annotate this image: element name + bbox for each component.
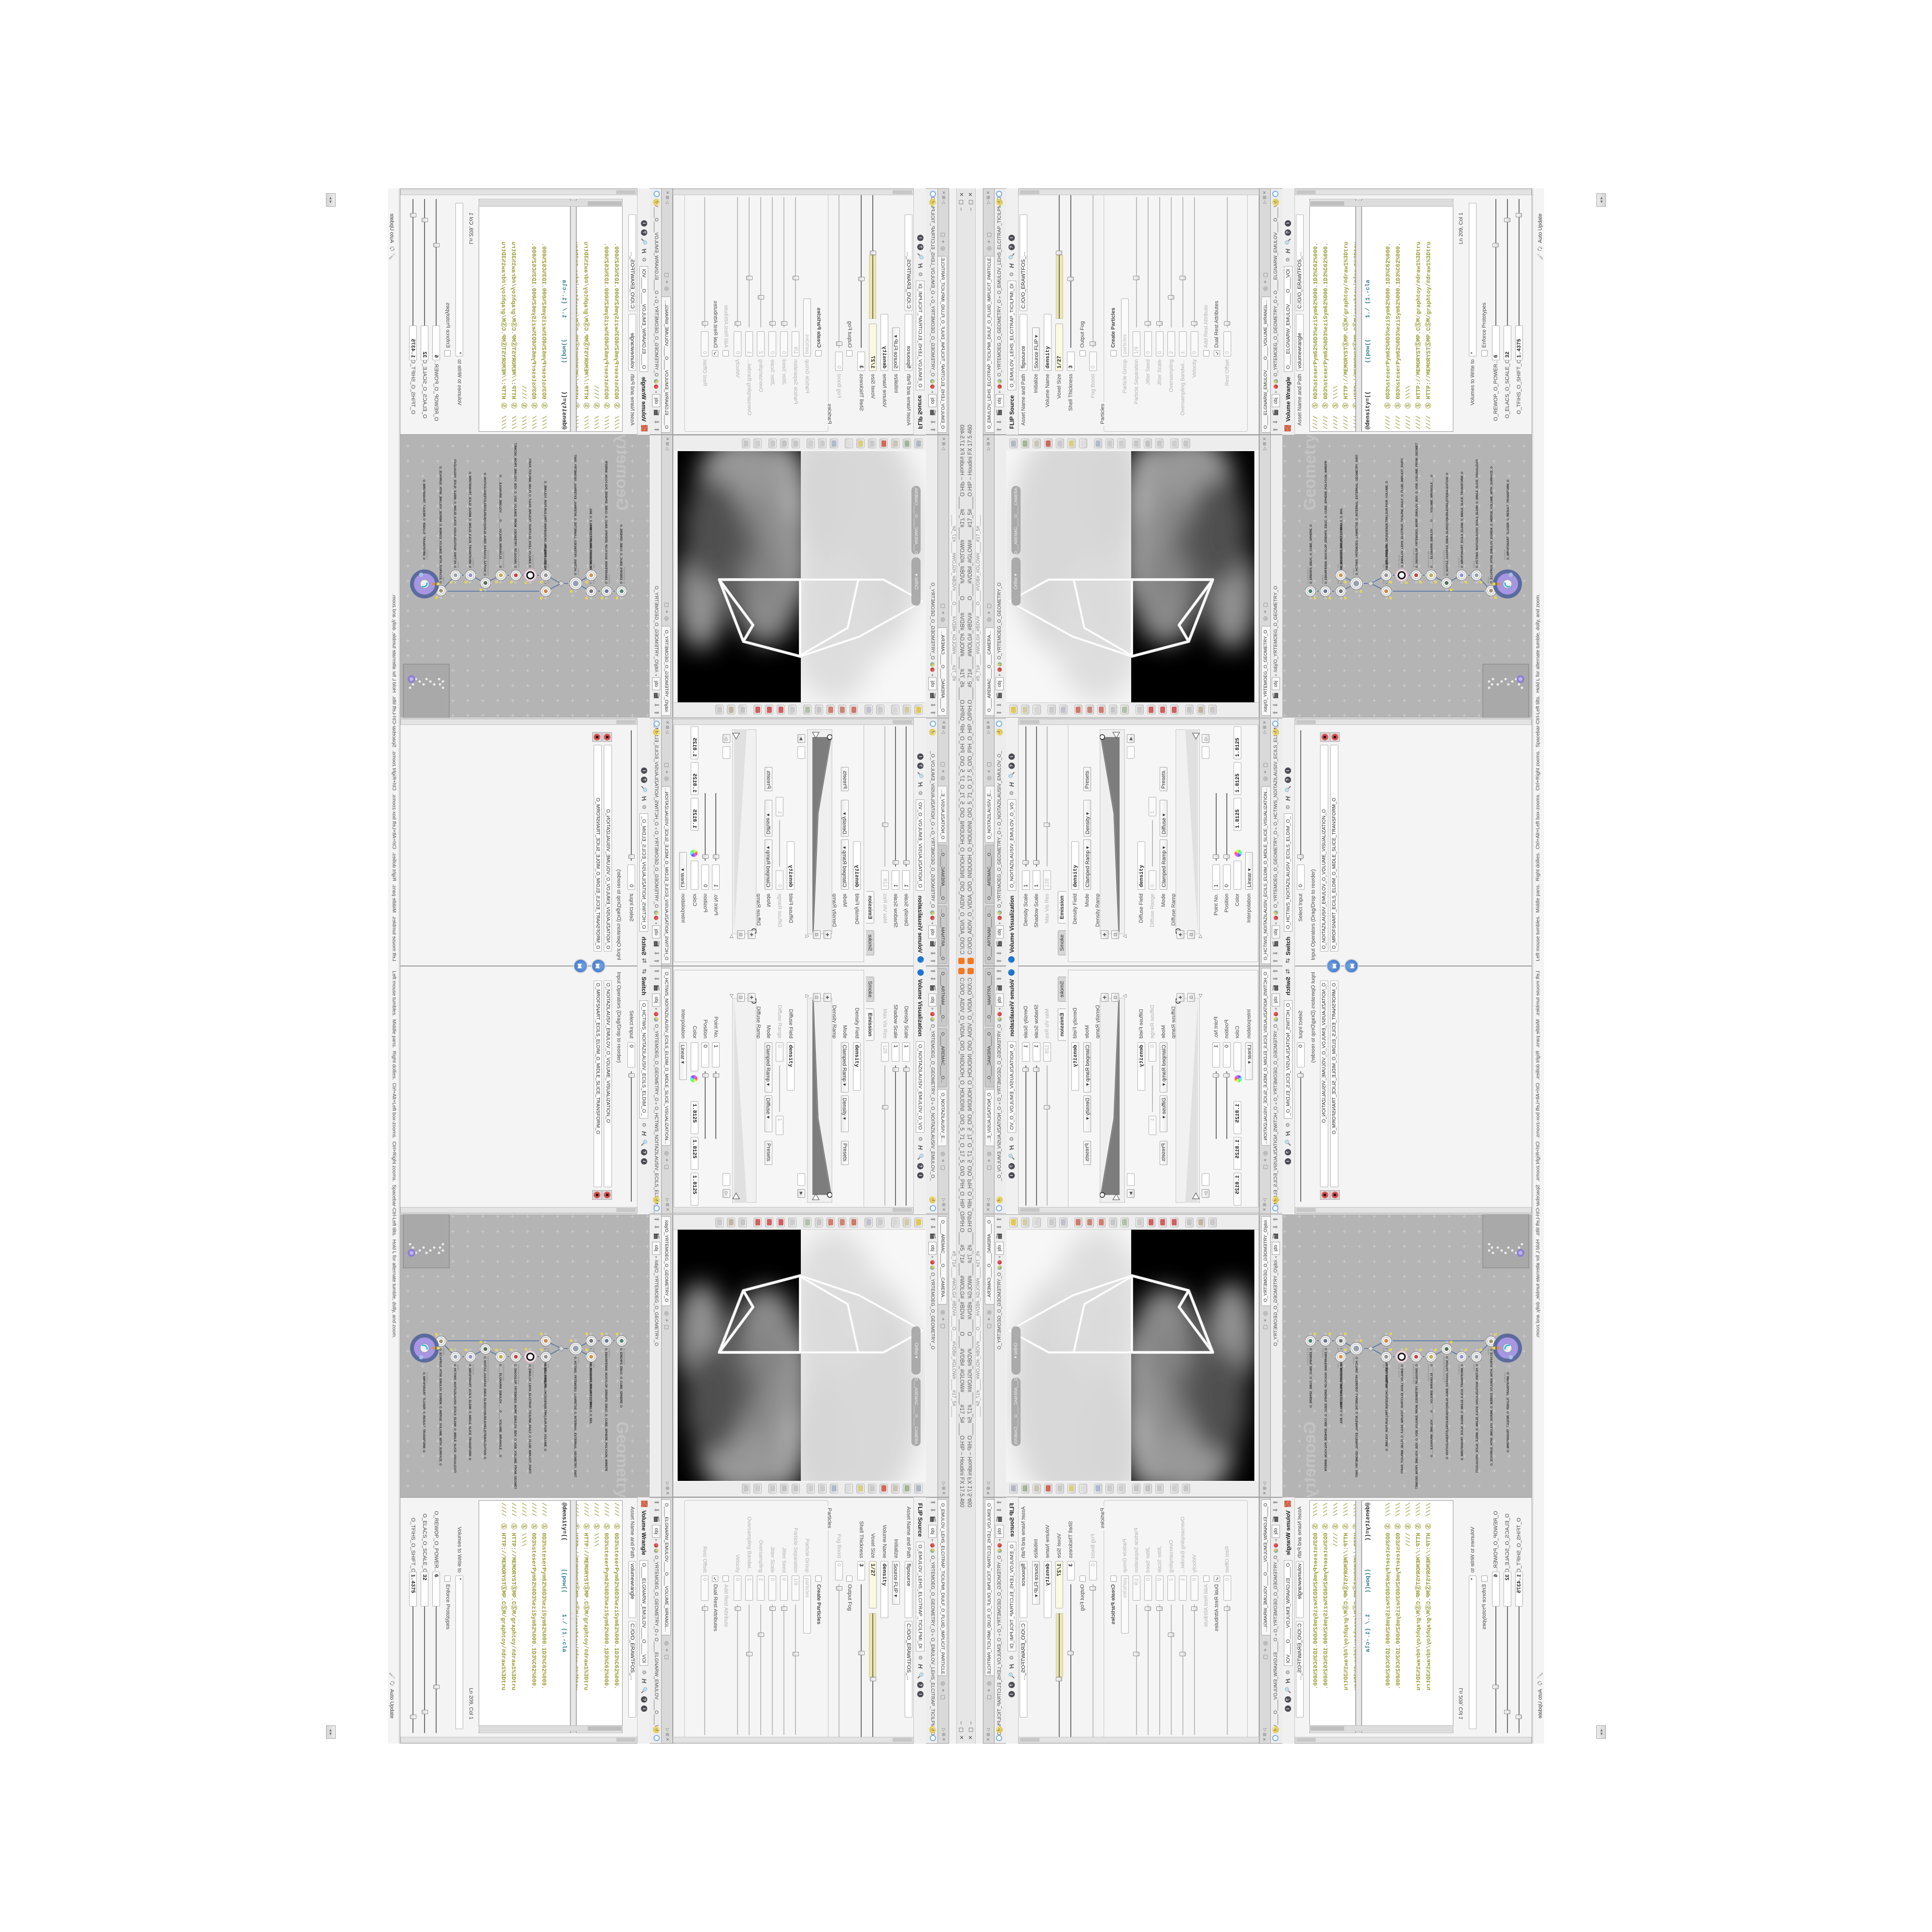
svg-text:O_EREHPS_EBUC_O_CUBE_SPHERE_O: O_EREHPS_EBUC_O_CUBE_SPHERE_O — [1309, 525, 1313, 584]
svg-text:O_ECAFRUS_HTIW_EMULOV_EGREM_O_: O_ECAFRUS_HTIW_EMULOV_EGREM_O_MERGE_VOLU… — [439, 1349, 442, 1466]
svg-text:O_NOITAZ..O/AGFAS_EMUL.SLI/D/(: O_NOITAZ..O/AGFAS_EMUL.SLI/D/(CO)NJDLE/S… — [483, 473, 486, 576]
svg-text:O_EMARFENIW_NOGYLOP_EREHPS_EBU: O_EMARFENIW_NOGYLOP_EREHPS_EBUC_O_CUBE_S… — [604, 461, 608, 584]
svg-text:O_ECA/RUB|JR..: O_ECA/RUB|JR.. — [1385, 1364, 1389, 1389]
svg-text:O_MROFSNART_TLUSER_O_RESULT_TR: O_MROFSNART_TLUSER_O_RESULT_TRANSFORM_O — [1506, 480, 1510, 560]
svg-text:O_NOITAZ..O/AGFAS_EMUL.SLI/D/(: O_NOITAZ..O/AGFAS_EMUL.SLI/D/(CO)NJDLE/S… — [1446, 473, 1449, 576]
svg-text:O_ECA.FRU.S|DL_RIM|LPIN..OK(S|: O_ECA.FRU.S|DL_RIM|LPIN..OK(S|GEN|W.TRK(… — [543, 1348, 547, 1451]
svg-text:O_NO.EL/BD,NO3,PETS,TRP.OLS_O_: O_NO.EL/BD,NO3,PETS,TRP.OLS_O_BDL — [1340, 508, 1343, 568]
svg-text:O_SNOGILOP_YRTEMOEG_MORF_EMULO: O_SNOGILOP_YRTEMOEG_MORF_EMULOV_BDV_O_VD… — [1415, 443, 1419, 568]
svg-text:O_SNOGILOP_YRTEMOEG_MORF_EMULO: O_SNOGILOP_YRTEMOEG_MORF_EMULOV_BDV_O_VD… — [1415, 1364, 1419, 1489]
svg-text:O_ECAFRUS_HTIW_EMULOV_EGREM_O_: O_ECAFRUS_HTIW_EMULOV_EGREM_O_MERGE_VOLU… — [439, 466, 442, 583]
svg-text:O_NO.EL/BD,NO3,PETS,TRP.OLS_O_: O_NO.EL/BD,NO3,PETS,TRP.OLS_O_BDL — [589, 508, 592, 568]
svg-text:O_NO.EL/BD,NO3,PETS,TRP.OLS_O_: O_NO.EL/BD,NO3,PETS,TRP.OLS_O_BDL — [1340, 1364, 1343, 1424]
svg-text:O_MROFSNART_TLUSER_O_RESULT_TR: O_MROFSNART_TLUSER_O_RESULT_TRANSFORM_O — [1506, 1372, 1510, 1452]
svg-text:O_HCTIWS_NOITAZILAUSIV_ECILS_E: O_HCTIWS_NOITAZILAUSIV_ECILS_ELDIM_O_MID… — [1476, 1364, 1479, 1473]
svg-text:O_EMULOV_LEHS_ELCITRAP_TICILPM: O_EMULOV_LEHS_ELCITRAP_TICILPMI_DIULF_O_… — [1401, 458, 1404, 568]
svg-text:O_ECAFRUS_HTIW_EMULOV_EGREM_O_: O_ECAFRUS_HTIW_EMULOV_EGREM_O_MERGE_VOLU… — [1490, 466, 1493, 583]
svg-text:O_ECA/RUB|JR..: O_ECA/RUB|JR.. — [1385, 543, 1389, 568]
svg-text:O____ELGNARW_EMULOV____O____VO: O____ELGNARW_EMULOV____O____VOLUME_WRANG… — [498, 1364, 502, 1457]
svg-text:O_ECA/RUB|JR..: O_ECA/RUB|JR.. — [543, 1364, 547, 1389]
svg-text:O_HCTIWS_NOITAZILAUSIV_ECILS_E: O_HCTIWS_NOITAZILAUSIV_ECILS_ELDIM_O_MID… — [1476, 459, 1479, 568]
svg-text:O_MROFSNART_TLUSER_O_RESULT_TR: O_MROFSNART_TLUSER_O_RESULT_TRANSFORM_O — [422, 480, 426, 560]
svg-text:O_ECA.FRU.S|DL_RIM|LPIN..OK(S|: O_ECA.FRU.S|DL_RIM|LPIN..OK(S|GEN|W.TRK(… — [1385, 1348, 1389, 1451]
svg-text:O_EREHPS_EBUC_O_CUBE_SPHERE_O: O_EREHPS_EBUC_O_CUBE_SPHERE_O — [1309, 1348, 1313, 1407]
svg-text:Geometry: Geometry — [1301, 1421, 1319, 1497]
svg-text:O_MROFSNART_TLUSER_O_RESULT_TR: O_MROFSNART_TLUSER_O_RESULT_TRANSFORM_O — [422, 1372, 426, 1452]
svg-text:O_NOITAZ..O/AGFAS_EMUL.SLI/D/(: O_NOITAZ..O/AGFAS_EMUL.SLI/D/(CO)NJDLE/S… — [483, 1356, 486, 1459]
svg-text:O_NOITAZ..O/AGFAS_EMUL.SLI/D/(: O_NOITAZ..O/AGFAS_EMUL.SLI/D/(CO)NJDLE/S… — [1446, 1356, 1449, 1459]
svg-text:O_HCTIWS_NOITAZILAUSIV_ECILS_E: O_HCTIWS_NOITAZILAUSIV_ECILS_ELDIM_O_MID… — [453, 1364, 456, 1473]
svg-text:O____ELGNARW_EMULOV____O____VO: O____ELGNARW_EMULOV____O____VOLUME_WRANG… — [498, 475, 502, 568]
svg-text:O_ECA.FRU.S|DL_RIM|LPIN..OK(S|: O_ECA.FRU.S|DL_RIM|LPIN..OK(S|GEN|W.TRK(… — [1385, 481, 1389, 584]
svg-text:O_SNOGILOP_YRTEMOEG_MORF_EMULO: O_SNOGILOP_YRTEMOEG_MORF_EMULOV_BDV_O_VD… — [513, 443, 517, 568]
svg-text:O_EMULOV_LEHS_ELCITRAP_TICILPM: O_EMULOV_LEHS_ELCITRAP_TICILPMI_DIULF_O_… — [1401, 1364, 1404, 1474]
svg-text:O_EMULOV_LEHS_ELCITRAP_TICILPM: O_EMULOV_LEHS_ELCITRAP_TICILPMI_DIULF_O_… — [528, 1364, 531, 1474]
svg-text:O_SNOGILOP_YRTEMOEG_MORF_EMULO: O_SNOGILOP_YRTEMOEG_MORF_EMULOV_BDV_O_VD… — [513, 1364, 517, 1489]
svg-text:O_EMULOV_LEHS_ELCITRAP_TICILPM: O_EMULOV_LEHS_ELCITRAP_TICILPMI_DIULF_O_… — [528, 458, 531, 568]
svg-text:Geometry: Geometry — [613, 435, 631, 511]
svg-text:O_MROFSNART_ECILS_ELDIM_O_MIDL: O_MROFSNART_ECILS_ELDIM_O_MIDLE_SLICE_TR… — [468, 471, 471, 568]
svg-text:O_MROFSNART_ECILS_ELDIM_O_MIDL: O_MROFSNART_ECILS_ELDIM_O_MIDLE_SLICE_TR… — [468, 1364, 471, 1461]
svg-text:O_MROFSNART_ECILS_ELDIM_O_MIDL: O_MROFSNART_ECILS_ELDIM_O_MIDLE_SLICE_TR… — [1461, 471, 1464, 568]
svg-text:O_HCTIWS_NOITAZILAUSIV_ECILS_E: O_HCTIWS_NOITAZILAUSIV_ECILS_ELDIM_O_MID… — [453, 459, 456, 568]
svg-text:O_ECAFRUS_HTIW_EMULOV_EGREM_O_: O_ECAFRUS_HTIW_EMULOV_EGREM_O_MERGE_VOLU… — [1490, 1349, 1493, 1466]
svg-text:O_EREHPS_EBUC_O_CUBE_SPHERE_O: O_EREHPS_EBUC_O_CUBE_SPHERE_O — [619, 1348, 623, 1407]
svg-text:O_ECA.FRU.S|DL_RIM|LPIN..OK(S|: O_ECA.FRU.S|DL_RIM|LPIN..OK(S|GEN|W.TRK(… — [543, 481, 547, 584]
svg-text:O_EREHPS_EBUC_O_CUBE_SPHERE_O: O_EREHPS_EBUC_O_CUBE_SPHERE_O — [619, 525, 623, 584]
svg-text:O_NO.EL/BD,NO3,PETS,TRP.OLS_O_: O_NO.EL/BD,NO3,PETS,TRP.OLS_O_BDL — [589, 1364, 592, 1424]
svg-text:O_HCTIWS_YRTEMOEG_LANRETXE_O_I: O_HCTIWS_YRTEMOEG_LANRETXE_O_INTERNAL_EX… — [573, 1357, 577, 1477]
svg-text:Geometry: Geometry — [613, 1421, 631, 1497]
svg-text:O_HCTIWS_YRTEMOEG_LANRETXE_O_I: O_HCTIWS_YRTEMOEG_LANRETXE_O_INTERNAL_EX… — [1355, 455, 1359, 575]
svg-text:O_HCTIWS_YRTEMOEG_LANRETXE_O_I: O_HCTIWS_YRTEMOEG_LANRETXE_O_INTERNAL_EX… — [573, 455, 577, 575]
svg-text:O____ELGNARW_EMULOV____O____VO: O____ELGNARW_EMULOV____O____VOLUME_WRANG… — [1430, 475, 1434, 568]
svg-text:O_EMARFENIW_NOGYLOP_EREHPS_EBU: O_EMARFENIW_NOGYLOP_EREHPS_EBUC_O_CUBE_S… — [1324, 1348, 1328, 1471]
svg-text:Geometry: Geometry — [1301, 435, 1319, 511]
svg-text:O_EMARFENIW_NOGYLOP_EREHPS_EBU: O_EMARFENIW_NOGYLOP_EREHPS_EBUC_O_CUBE_S… — [604, 1348, 608, 1471]
svg-text:O_HCTIWS_YRTEMOEG_LANRETXE_O_I: O_HCTIWS_YRTEMOEG_LANRETXE_O_INTERNAL_EX… — [1355, 1357, 1359, 1477]
svg-text:O_EMARFENIW_NOGYLOP_EREHPS_EBU: O_EMARFENIW_NOGYLOP_EREHPS_EBUC_O_CUBE_S… — [1324, 461, 1328, 584]
svg-text:O____ELGNARW_EMULOV____O____VO: O____ELGNARW_EMULOV____O____VOLUME_WRANG… — [1430, 1364, 1434, 1457]
svg-text:O_ECA/RUB|JR..: O_ECA/RUB|JR.. — [543, 543, 547, 568]
svg-text:O_MROFSNART_ECILS_ELDIM_O_MIDL: O_MROFSNART_ECILS_ELDIM_O_MIDLE_SLICE_TR… — [1461, 1364, 1464, 1461]
